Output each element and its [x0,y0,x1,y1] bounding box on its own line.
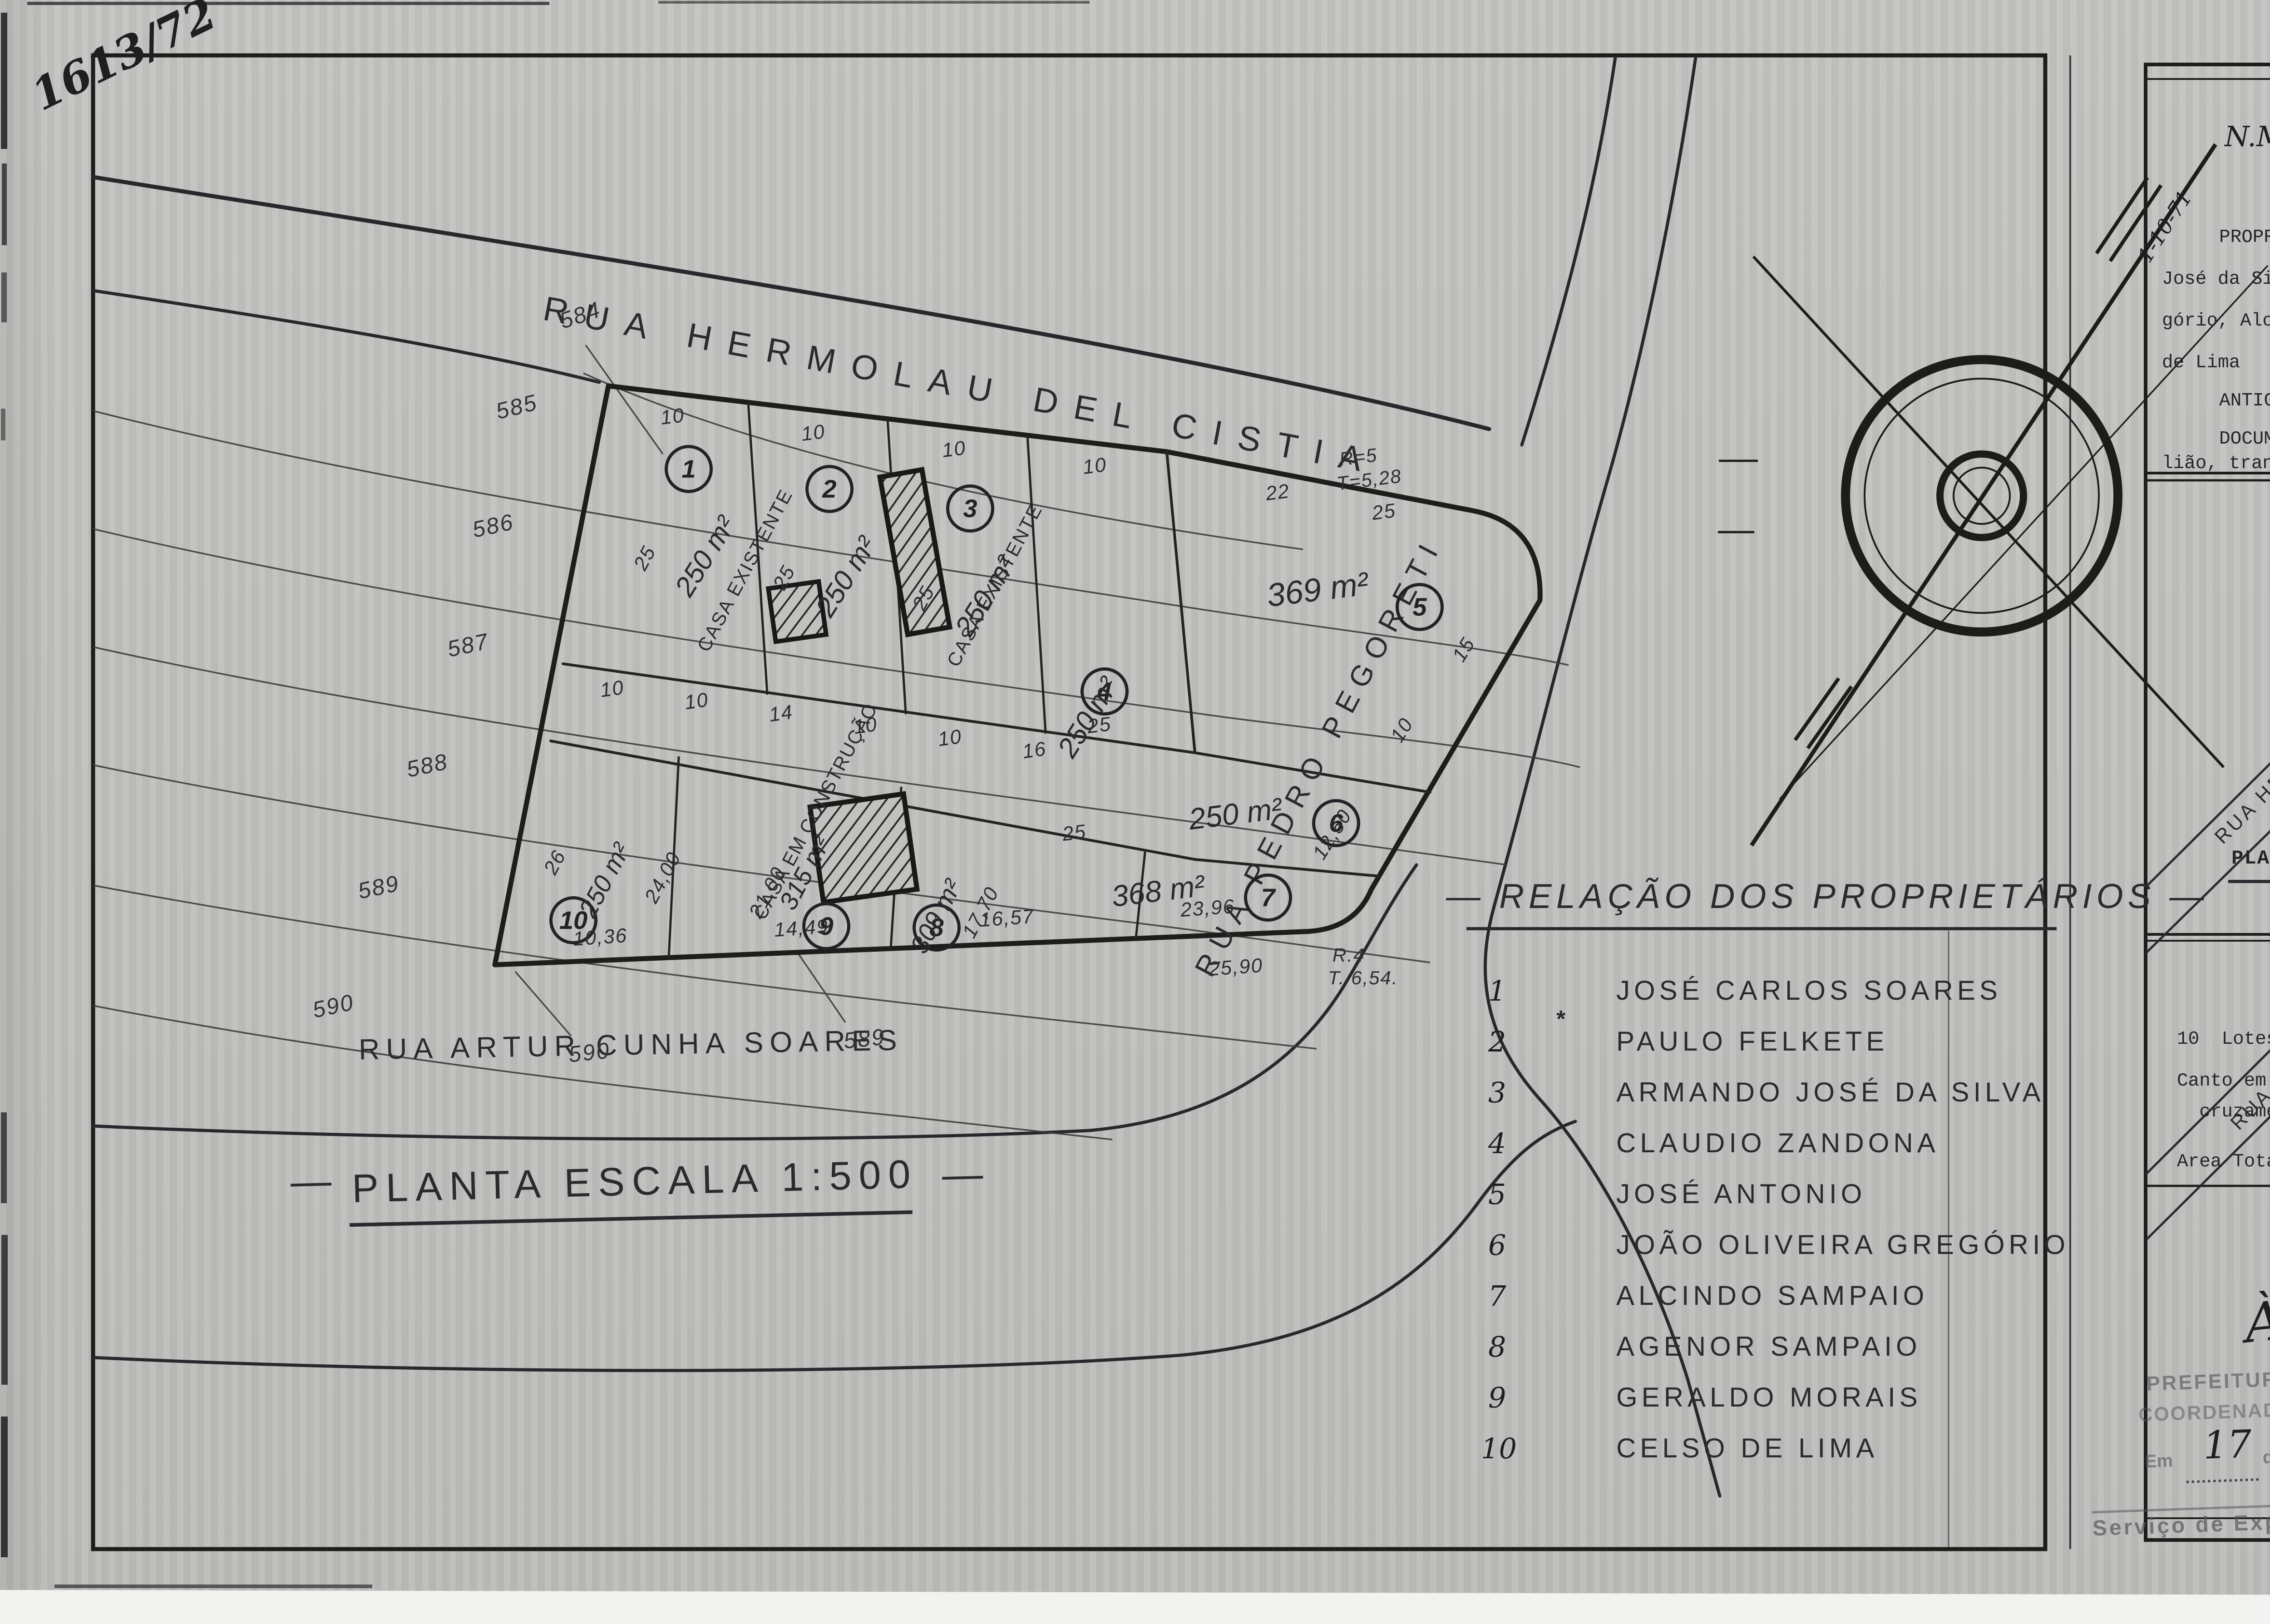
dim-mid-1: 10 [599,677,626,701]
antigo-line: ANTIGO PROPRIETÁRIO: Dra. Aracelis Rodri… [2219,391,2270,411]
dim-mid-6: 16 [1021,739,1048,763]
owner-name-10: CELSO DE LIMA [1616,1434,1878,1462]
owner-name-2: PAULO FELKETE [1616,1027,1888,1056]
edge-streak-7 [1,1417,8,1557]
topografia-org-1: PREFEITURA MUNICIPAL DE SOROCABA [2146,1357,2270,1394]
edge-streak-5 [1,1112,7,1203]
locmap-label: PLANTA PARA LOCALIZAÇÃO [2231,848,2270,869]
owners-title-underline [1466,927,2057,930]
street-hermolau-upper-edge [93,177,1489,429]
prop-line-3: gório, Alcindo Sampaio, Agenor Sampaio, … [2162,311,2270,331]
owner-name-1: JOSÉ CARLOS SOARES [1616,976,2002,1005]
owner-name-7: ALCINDO SAMPAIO [1616,1281,1928,1310]
areas-row-total: Area Total..........2.876,00 m2 [2177,1152,2270,1172]
left-sheet-border [93,55,2045,1549]
scanner-bed-strip [0,1590,2270,1624]
edge-streak-2 [2,163,7,245]
streets [93,57,1720,1496]
topografia-de: de [2262,1447,2270,1467]
areas-row-canto-2: cruzamentos....... 15,00 m2 [2177,1102,2270,1122]
leader-590b [515,972,571,1036]
leader-589b [798,953,845,1022]
dim-right-25b: 25 [1061,821,1087,845]
lot-number-5: 5 [1396,583,1444,631]
compass-tick-sw-2 [1795,678,1839,740]
locmap-label-underline [2228,880,2270,883]
dim-top-3: 10 [941,438,967,461]
dim-top-2: 10 [800,421,826,445]
owners-title: — RELAÇÃO DOS PROPRIETÁRIOS — [1446,879,2208,915]
building-casa-existente-lot4 [880,470,950,635]
contour-590 [93,1006,1112,1140]
divider-lot4-5 [1167,452,1195,753]
street-pegoreti-left-edge [1522,57,1615,445]
scan-artifacts [1,1,1090,1588]
lot-number-1: 1 [665,445,713,493]
top-edge-line-1 [27,2,549,5]
owner-name-9: GERALDO MORAIS [1616,1383,1922,1412]
owner-name-4: CLAUDIO ZANDONA [1616,1129,1939,1157]
owner-num-2: 2 [1488,1027,1506,1056]
owner-name-6: JOÃO OLIVEIRA GREGÓRIO [1616,1230,2069,1259]
owner-num-8: 8 [1488,1332,1506,1362]
curve-top-r: R=5 [1338,445,1379,469]
areas-row-lotes: 10 Lotes...........2.861,00 m2 [2177,1030,2270,1049]
documento-line-1: DOCUMENTO DE PROPRIEDADE: Escritura públ… [2219,429,2270,449]
documento-line-2: lião, transcrita no Cartorio da 1º Circu… [2162,454,2270,474]
owner-num-4: 4 [1488,1129,1506,1158]
dim-bottom-1: 10,36 [572,925,628,950]
dim-bottom-5: 25,90 [1208,955,1264,980]
top-edge-line-2 [658,1,1090,4]
curve-bottom-r: R.4 [1332,945,1365,965]
edge-streak-6 [1,1235,8,1385]
dim-mid-2: 10 [683,690,710,714]
dim-mid-4: 10 [852,714,879,738]
prop-line-1: PROPRITÁRIOS:- José Carlos Soares, Paulo… [2219,228,2270,247]
scanned-plan-document: 1613/72 RUA HERMOLAU DEL CISTIA RUA PEDR… [0,0,2270,1624]
dim-mid-3: 14 [768,702,794,726]
compass-cross-line [1753,257,2224,767]
owner-num-10: 10 [1481,1434,1517,1463]
owner-num-9: 9 [1488,1383,1506,1412]
dim-top-1: 10 [659,405,686,429]
areas-row-canto-1: Canto em curva nos [2177,1071,2270,1091]
lot-number-2: 2 [805,465,854,513]
elevation-589-below: 589 [843,1025,887,1053]
topografia-footer-line [2092,1493,2270,1514]
dim-bottom-2: 14,49 [774,916,829,941]
prop-line-2: José da Silva, Claudio Zandona, José Ant… [2162,270,2270,289]
topografia-stamp: À Topografia PREFEITURA MUNICIPAL DE SOR… [2066,1266,2270,1549]
scale-dash-right: — [942,1153,983,1197]
owner-num-5: 5 [1488,1180,1506,1209]
elevation-590-below: 590 [567,1038,612,1066]
topografia-day-line [2186,1478,2259,1484]
topografia-day: 17 [2202,1424,2252,1466]
owner-name-5: JOSÉ ANTONIO [1616,1180,1866,1208]
dim-bottom-3: 16,57 [979,906,1035,931]
prop-line-4: de Lima [2162,353,2240,373]
topografia-em: Em [2144,1451,2173,1471]
compass-nm-label: N.M [2225,122,2270,151]
plan-linework [0,0,2270,1624]
compass-rose [1718,144,2268,845]
owners-asterisk: * [1556,1007,1565,1032]
building-casa-existente-lot3 [768,582,826,642]
scale-dash-left: — [290,1160,334,1204]
bottom-edge-line [54,1585,372,1588]
owner-name-3: ARMANDO JOSÉ DA SILVA [1616,1078,2045,1106]
dim-top-4: 10 [1081,454,1108,478]
dim-top-5: 22 [1264,481,1291,504]
edge-streak-3 [1,272,7,322]
dim-bottom-4: 23,96 [1180,896,1236,921]
lot-number-3: 3 [946,484,994,533]
owner-num-6: 6 [1488,1230,1506,1260]
owner-num-3: 3 [1488,1078,1506,1107]
owner-name-8: AGENOR SAMPAIO [1616,1332,1921,1361]
curve-bottom-t: T. 6,54. [1328,968,1398,988]
compass-tick-sw-1 [1808,686,1851,748]
edge-streak-1 [1,13,7,149]
edge-streak-4 [1,409,5,440]
street-hermolau-lower-edge [93,291,599,382]
dim-mid-5: 10 [937,726,963,750]
dim-right-25a: 25 [1086,714,1112,737]
lot-number-7: 7 [1244,874,1292,922]
owner-num-7: 7 [1488,1281,1506,1311]
dim-top-6: 25 [1371,500,1397,524]
owner-num-1: 1 [1488,976,1506,1006]
